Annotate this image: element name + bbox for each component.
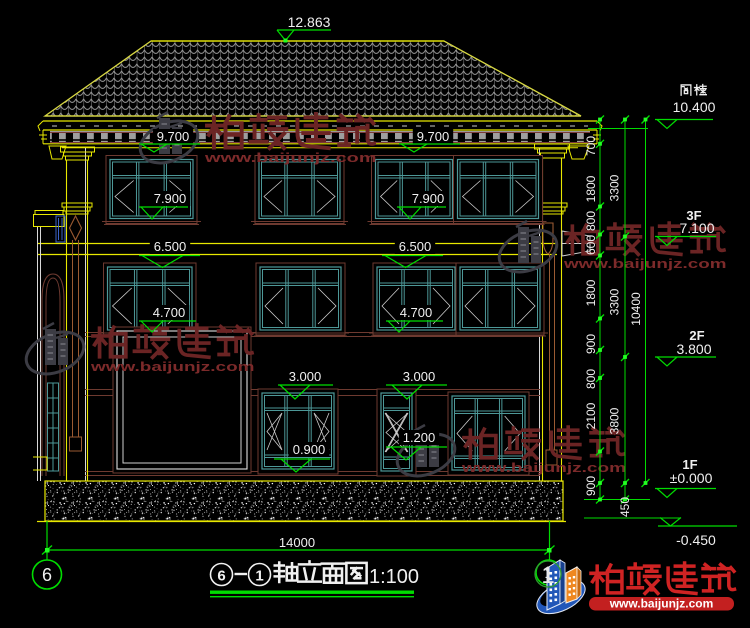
- svg-text:900: 900: [584, 334, 598, 354]
- svg-text:3.000: 3.000: [403, 369, 436, 384]
- svg-text:900: 900: [584, 476, 598, 496]
- svg-text:3.000: 3.000: [289, 369, 322, 384]
- svg-text:6: 6: [42, 565, 52, 585]
- svg-text:2100: 2100: [584, 402, 598, 429]
- svg-text:7.100: 7.100: [679, 220, 714, 236]
- svg-text:4.700: 4.700: [153, 305, 186, 320]
- svg-text:9.700: 9.700: [157, 129, 190, 144]
- svg-text:www.baijunjz.com: www.baijunjz.com: [609, 597, 714, 611]
- svg-text:10400: 10400: [629, 292, 643, 326]
- svg-text:450: 450: [618, 497, 632, 517]
- svg-text:800: 800: [584, 369, 598, 389]
- svg-text:6: 6: [217, 568, 225, 585]
- svg-text:1800: 1800: [584, 279, 598, 306]
- svg-text:7.900: 7.900: [154, 191, 187, 206]
- svg-text:1800: 1800: [584, 175, 598, 202]
- svg-text:3.800: 3.800: [676, 341, 711, 357]
- svg-text:0.900: 0.900: [293, 442, 326, 457]
- svg-text:3300: 3300: [608, 174, 622, 201]
- svg-text:1:100: 1:100: [369, 566, 419, 588]
- svg-text:800: 800: [584, 211, 598, 231]
- svg-text:4.700: 4.700: [400, 305, 433, 320]
- svg-text:3800: 3800: [608, 407, 622, 434]
- svg-text:14000: 14000: [279, 535, 315, 550]
- svg-text:www.baijunjz.com: www.baijunjz.com: [563, 256, 727, 271]
- svg-text:600: 600: [584, 235, 598, 255]
- svg-text:-0.450: -0.450: [676, 532, 716, 548]
- svg-text:1: 1: [255, 568, 263, 585]
- svg-text:1: 1: [541, 562, 554, 589]
- svg-text:9.700: 9.700: [417, 129, 450, 144]
- svg-text:7.900: 7.900: [412, 191, 445, 206]
- svg-text:10.400: 10.400: [673, 99, 716, 115]
- svg-text:6.500: 6.500: [399, 239, 432, 254]
- svg-text:www.baijunjz.com: www.baijunjz.com: [461, 460, 626, 475]
- svg-text:3300: 3300: [608, 288, 622, 315]
- svg-text:±0.000: ±0.000: [670, 470, 713, 486]
- svg-text:700: 700: [584, 136, 598, 156]
- svg-text:www.baijunjz.com: www.baijunjz.com: [203, 150, 376, 165]
- svg-text:1.200: 1.200: [403, 430, 436, 445]
- svg-text:12.863: 12.863: [288, 14, 331, 30]
- svg-text:www.baijunjz.com: www.baijunjz.com: [90, 359, 255, 374]
- svg-text:6.500: 6.500: [154, 239, 187, 254]
